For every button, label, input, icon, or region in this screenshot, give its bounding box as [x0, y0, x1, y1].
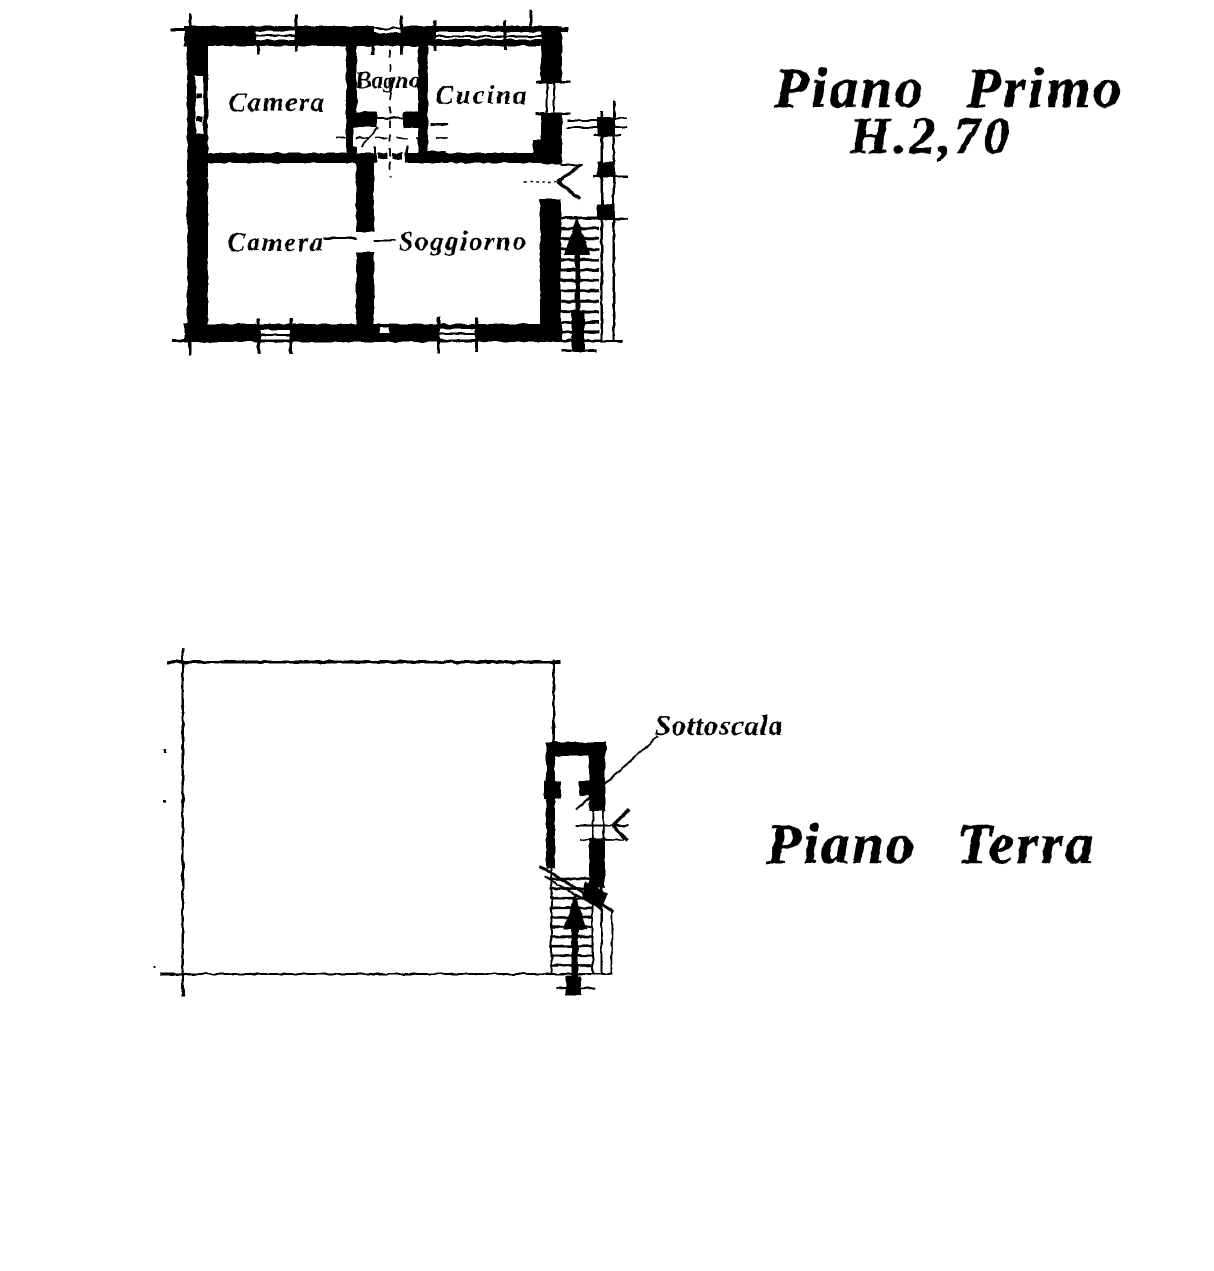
svg-text:Camera: Camera [228, 87, 326, 117]
svg-text:Bagno: Bagno [354, 68, 420, 94]
svg-text:H.2,70: H.2,70 [849, 108, 1012, 165]
svg-text:Piano Terra: Piano Terra [765, 813, 1096, 876]
svg-text:Camera: Camera [227, 227, 325, 257]
svg-text:Cucina: Cucina [435, 80, 528, 110]
svg-text:Sottoscala: Sottoscala [655, 710, 783, 742]
svg-text:Soggiorno: Soggiorno [398, 226, 527, 256]
